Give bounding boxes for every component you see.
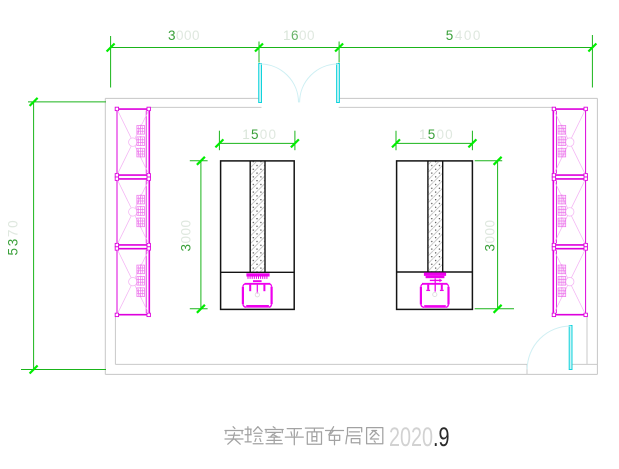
- svg-text:5370: 5370: [6, 219, 21, 256]
- svg-text:1500: 1500: [242, 127, 277, 142]
- svg-text:3000: 3000: [168, 28, 200, 43]
- svg-text:1500: 1500: [419, 127, 454, 142]
- svg-text:3000: 3000: [179, 219, 194, 251]
- svg-text:3000: 3000: [483, 219, 498, 251]
- svg-text:2020.9: 2020.9: [389, 422, 450, 452]
- svg-text:1600: 1600: [283, 28, 315, 43]
- svg-text:5400: 5400: [446, 28, 482, 43]
